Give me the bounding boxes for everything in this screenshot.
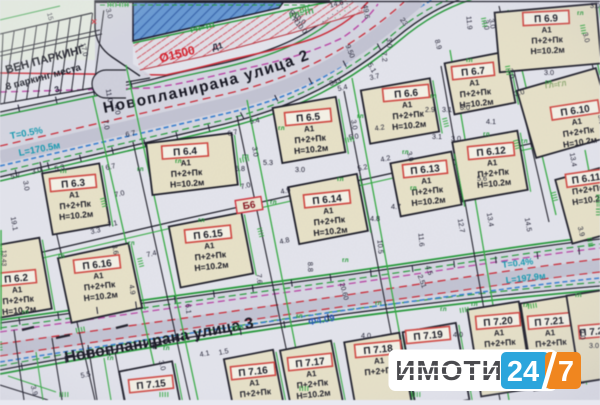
- svg-text:ИМОТИ: ИМОТИ: [395, 355, 502, 386]
- svg-text:24: 24: [507, 356, 539, 388]
- svg-text:7: 7: [558, 356, 574, 388]
